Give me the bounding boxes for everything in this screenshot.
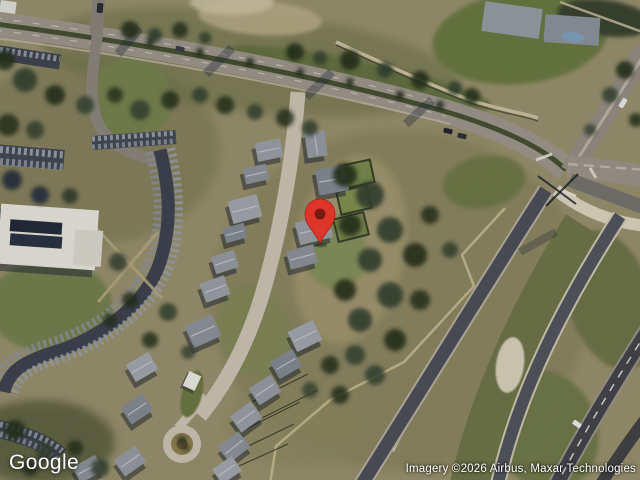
satellite-map-view[interactable]: Google Imagery ©2026 Airbus, Maxar Techn… [0, 0, 640, 480]
satellite-map-canvas[interactable] [0, 0, 640, 480]
google-logo[interactable]: Google [9, 451, 79, 475]
imagery-attribution: Imagery ©2026 Airbus, Maxar Technologies [406, 463, 636, 475]
